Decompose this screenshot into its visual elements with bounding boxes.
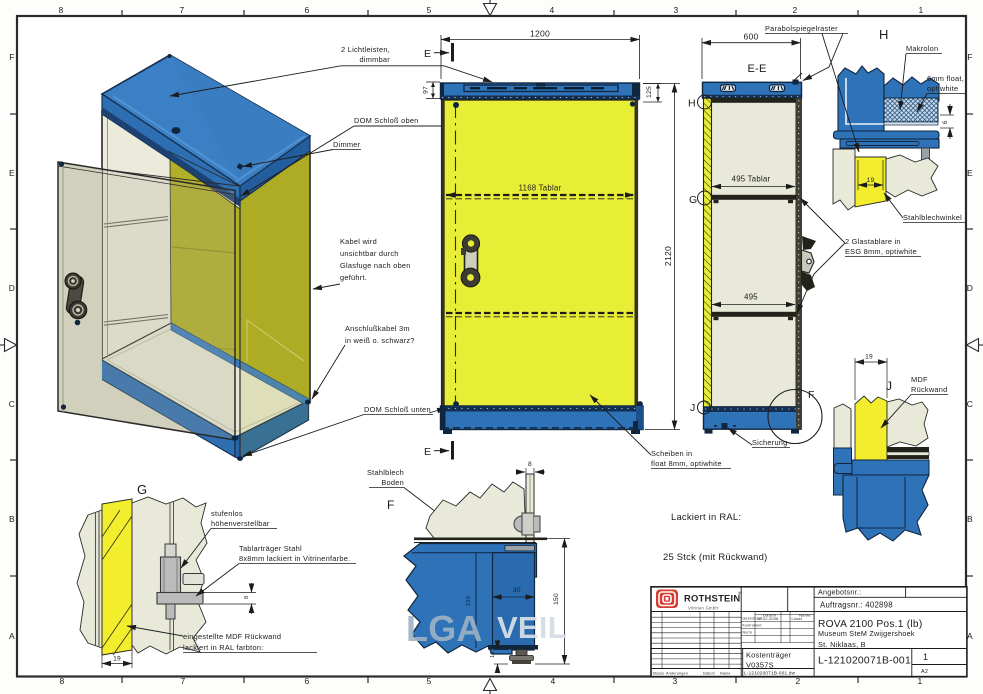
svg-text:6: 6: [943, 120, 949, 124]
svg-text:geführt.: geführt.: [340, 273, 367, 282]
svg-text:12.02.2008: 12.02.2008: [757, 617, 779, 621]
svg-text:97: 97: [423, 86, 430, 94]
svg-text:eingestellte MDF Rückwand: eingestellte MDF Rückwand: [183, 632, 281, 641]
svg-text:19: 19: [865, 354, 873, 361]
svg-text:Lokat: Lokat: [792, 617, 803, 621]
svg-text:1: 1: [923, 652, 928, 662]
svg-text:Anschlußkabel 3m: Anschlußkabel 3m: [345, 324, 410, 333]
svg-text:6mm float,: 6mm float,: [927, 74, 964, 83]
svg-text:Boden: Boden: [381, 478, 404, 487]
svg-text:12: 12: [490, 651, 496, 658]
svg-text:Status: Status: [653, 672, 665, 676]
svg-text:7: 7: [180, 5, 185, 15]
svg-text:495: 495: [744, 293, 758, 302]
svg-text:E: E: [967, 168, 973, 178]
svg-text:float 8mm, optiwhite: float 8mm, optiwhite: [651, 459, 722, 468]
svg-text:Scheiben in: Scheiben in: [651, 449, 692, 458]
svg-text:DOM Schloß oben: DOM Schloß oben: [354, 116, 419, 125]
svg-text:Makrolon: Makrolon: [906, 44, 938, 53]
svg-text:A2: A2: [921, 669, 928, 675]
svg-text:G: G: [137, 482, 147, 497]
svg-text:8: 8: [528, 461, 532, 468]
svg-text:A: A: [9, 631, 15, 641]
svg-text:3: 3: [674, 5, 679, 15]
svg-text:C: C: [967, 399, 973, 409]
svg-text:in weiß o. schwarz?: in weiß o. schwarz?: [345, 336, 415, 345]
svg-text:E: E: [424, 446, 431, 458]
svg-text:G: G: [689, 194, 697, 206]
svg-text:1: 1: [918, 676, 923, 686]
svg-text:Kostenträger: Kostenträger: [746, 651, 792, 660]
svg-text:Auftragsnr.: 402898: Auftragsnr.: 402898: [820, 601, 893, 610]
svg-text:J: J: [690, 402, 696, 414]
svg-text:1200: 1200: [530, 29, 550, 39]
svg-text:Sicherung: Sicherung: [752, 438, 788, 447]
svg-text:6: 6: [305, 676, 310, 686]
svg-text:unsichtbar durch: unsichtbar durch: [340, 249, 399, 258]
svg-text:19: 19: [867, 177, 875, 184]
svg-text:ROTHSTEIN: ROTHSTEIN: [684, 593, 740, 604]
svg-text:VEIL: VEIL: [497, 610, 567, 645]
svg-text:Name: Name: [720, 672, 731, 676]
svg-text:2 Glastablare in: 2 Glastablare in: [845, 237, 901, 246]
svg-text:ESG 8mm, optiwhite: ESG 8mm, optiwhite: [845, 247, 917, 256]
svg-text:8: 8: [59, 5, 64, 15]
svg-text:8: 8: [60, 676, 65, 686]
svg-text:3: 3: [673, 676, 678, 686]
svg-text:Stahlblechwinkel: Stahlblechwinkel: [903, 213, 962, 222]
svg-text:DOM Schloß unten: DOM Schloß unten: [364, 405, 431, 414]
svg-text:600: 600: [743, 32, 758, 42]
svg-text:A: A: [967, 631, 973, 641]
svg-text:8: 8: [244, 596, 250, 599]
svg-text:Lackiert in RAL:: Lackiert in RAL:: [671, 511, 741, 522]
svg-text:Angebotsnr.:: Angebotsnr.:: [818, 588, 861, 597]
svg-text:7: 7: [181, 676, 186, 686]
svg-text:St. Niklaas, B: St. Niklaas, B: [818, 640, 866, 649]
svg-text:®: ®: [738, 590, 742, 596]
svg-text:Parabolspiegelraster: Parabolspiegelraster: [765, 24, 838, 33]
svg-text:B: B: [9, 514, 15, 524]
svg-text:F: F: [387, 498, 395, 512]
svg-text:F: F: [967, 52, 972, 62]
svg-text:L-121020071B-001.dw: L-121020071B-001.dw: [744, 671, 796, 676]
svg-text:C: C: [9, 399, 15, 409]
svg-text:Kontrolliert: Kontrolliert: [743, 624, 762, 628]
svg-text:Stahlblech: Stahlblech: [367, 468, 404, 477]
svg-text:Vitrinen GmbH: Vitrinen GmbH: [688, 606, 719, 611]
svg-text:V0357S: V0357S: [746, 661, 774, 670]
svg-text:L-121020071B-001: L-121020071B-001: [818, 656, 911, 667]
svg-text:150: 150: [553, 593, 560, 605]
svg-text:Datum: Datum: [703, 672, 715, 676]
svg-text:125: 125: [646, 86, 653, 98]
svg-text:5: 5: [427, 676, 432, 686]
svg-text:Kabel wird: Kabel wird: [340, 237, 377, 246]
svg-text:H: H: [688, 98, 696, 110]
svg-text:120: 120: [466, 596, 472, 606]
svg-text:MDF: MDF: [911, 375, 928, 384]
svg-text:2120: 2120: [663, 246, 673, 266]
svg-text:F: F: [808, 389, 815, 401]
svg-text:lackiert in RAL farbton:: lackiert in RAL farbton:: [183, 643, 264, 652]
svg-text:2 Lichtleisten,: 2 Lichtleisten,: [341, 45, 390, 54]
svg-text:B: B: [967, 514, 973, 524]
svg-text:optiwhite: optiwhite: [927, 84, 958, 93]
svg-text:H: H: [879, 27, 889, 42]
svg-text:4: 4: [551, 676, 556, 686]
svg-text:Norm: Norm: [743, 631, 752, 635]
svg-text:D: D: [9, 283, 15, 293]
svg-text:6: 6: [305, 5, 310, 15]
svg-text:Dimmer: Dimmer: [333, 140, 361, 149]
svg-text:8x8mm lackiert in Vitrinenfarb: 8x8mm lackiert in Vitrinenfarbe.: [239, 554, 350, 563]
svg-text:höhenverstellbar: höhenverstellbar: [211, 519, 270, 528]
svg-text:30: 30: [513, 587, 521, 594]
svg-text:1168 Tablar: 1168 Tablar: [519, 184, 562, 193]
svg-text:2: 2: [796, 676, 801, 686]
svg-text:Rückwand: Rückwand: [911, 385, 948, 394]
svg-text:4: 4: [550, 5, 555, 15]
svg-text:dimmbar: dimmbar: [360, 55, 391, 64]
svg-text:Änderungen: Änderungen: [666, 672, 688, 676]
svg-text:D: D: [967, 283, 973, 293]
svg-text:Glasfuge nach oben: Glasfuge nach oben: [340, 261, 411, 270]
svg-text:F: F: [9, 52, 14, 62]
svg-text:LGA: LGA: [406, 608, 483, 649]
svg-text:Tablarträger Stahl: Tablarträger Stahl: [239, 544, 302, 553]
svg-text:E: E: [424, 48, 431, 60]
svg-text:2: 2: [793, 5, 798, 15]
svg-text:stufenlos: stufenlos: [211, 509, 243, 518]
svg-text:25 Stck (mit Rückwand): 25 Stck (mit Rückwand): [663, 551, 768, 562]
svg-text:1: 1: [919, 5, 924, 15]
svg-text:495 Tablar: 495 Tablar: [732, 175, 771, 184]
svg-text:19: 19: [113, 656, 121, 663]
svg-text:E-E: E-E: [747, 63, 766, 75]
svg-text:E: E: [9, 168, 15, 178]
svg-text:5: 5: [427, 5, 432, 15]
svg-text:Museum SteM Zwijgershoek: Museum SteM Zwijgershoek: [818, 629, 915, 638]
